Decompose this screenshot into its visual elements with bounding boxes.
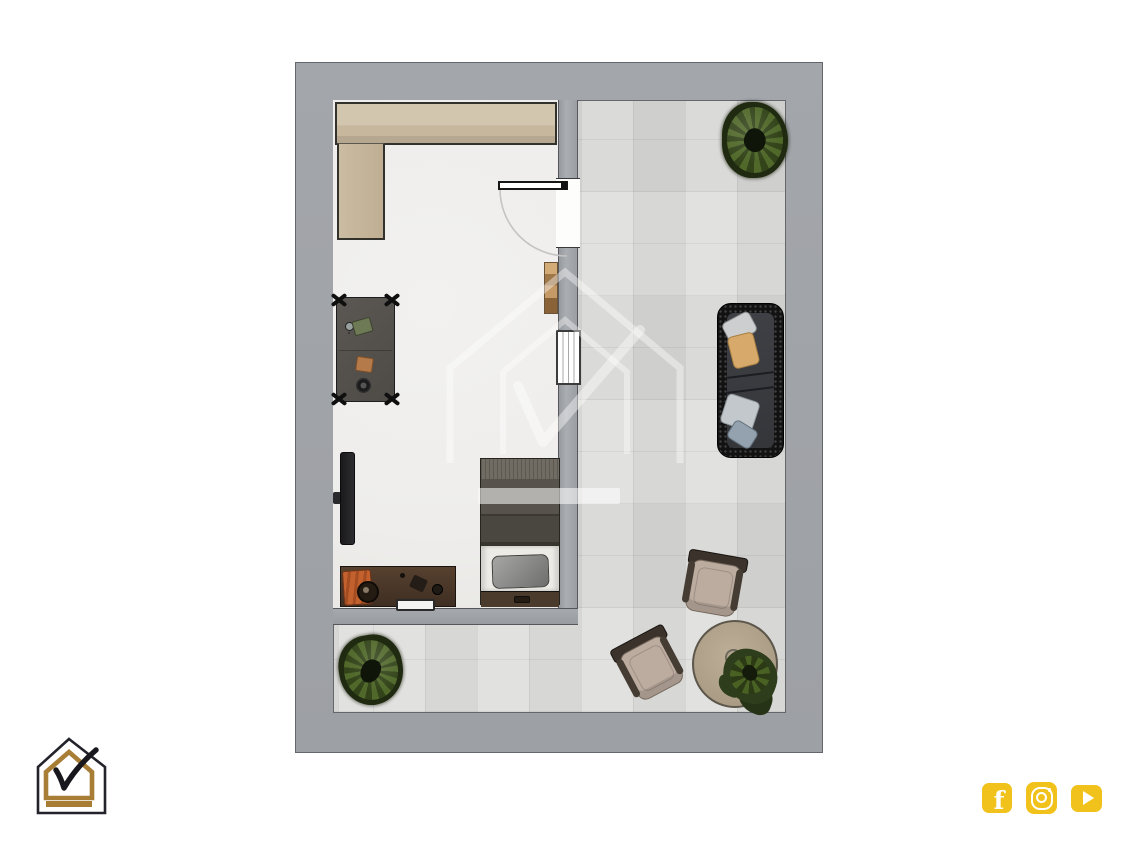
wardrobe-side-section: [337, 143, 385, 240]
floorplan-render: f: [0, 0, 1133, 850]
window: [556, 330, 581, 385]
console-item-small: [400, 573, 405, 578]
headboard-handle: [514, 596, 530, 603]
plant-on-table: [712, 644, 782, 706]
duvet: [481, 479, 559, 546]
speaker: [357, 581, 379, 603]
door-leaf: [498, 181, 568, 190]
folded-blanket: [481, 459, 559, 480]
bowl-on-table: [356, 378, 371, 393]
console-item: [409, 574, 428, 592]
table-leg-icon: [383, 292, 401, 308]
wardrobe-top-section: [335, 102, 557, 145]
house-checkmark-logo: [36, 736, 108, 816]
single-bed: [480, 458, 560, 605]
table-leg-icon: [330, 391, 348, 407]
book-on-table: [351, 317, 373, 337]
armchair-upper: [679, 548, 747, 619]
side-table: [336, 297, 395, 402]
wall-shelf: [544, 262, 558, 314]
instagram-icon[interactable]: [1026, 782, 1057, 814]
terrace-plant-bottom: [333, 630, 408, 710]
white-tray: [396, 599, 435, 611]
wall-tv: [340, 452, 355, 545]
table-leg-icon: [330, 292, 348, 308]
youtube-icon[interactable]: [1071, 785, 1102, 812]
box-on-table: [355, 356, 374, 373]
table-seam: [339, 350, 392, 351]
table-leg-icon: [383, 391, 401, 407]
social-links: f: [982, 781, 1104, 815]
terrace-plant-top: [722, 102, 788, 178]
pillow: [491, 554, 549, 589]
partition-wall-bottom: [333, 608, 578, 625]
console-item-round: [432, 584, 443, 595]
facebook-icon[interactable]: f: [982, 783, 1012, 813]
door-swing-arc: [495, 184, 575, 262]
